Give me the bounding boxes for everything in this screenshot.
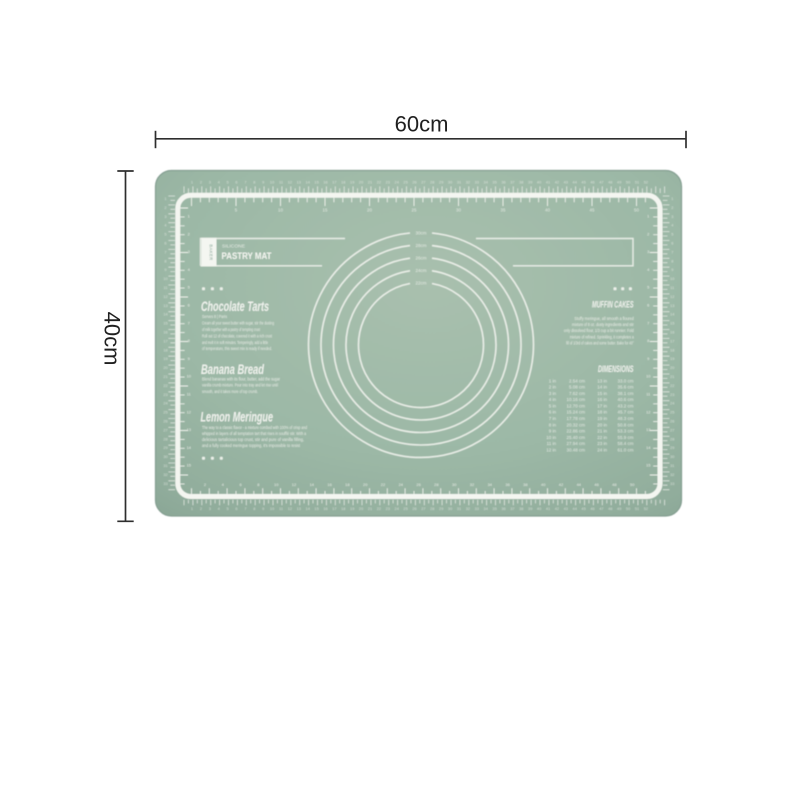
svg-text:23: 23 xyxy=(386,180,390,185)
svg-text:45: 45 xyxy=(581,180,585,185)
svg-text:5: 5 xyxy=(164,232,166,237)
svg-text:31: 31 xyxy=(457,506,461,511)
svg-text:21: 21 xyxy=(368,506,372,511)
svg-text:5: 5 xyxy=(227,506,229,511)
svg-text:6: 6 xyxy=(235,180,237,185)
svg-text:25.40 cm: 25.40 cm xyxy=(566,435,585,440)
svg-text:mixture of 8 oz. dusty ingredi: mixture of 8 oz. dusty ingredients and s… xyxy=(572,322,634,327)
svg-text:61.0 cm: 61.0 cm xyxy=(617,447,633,452)
svg-text:19: 19 xyxy=(350,180,354,185)
svg-text:41: 41 xyxy=(546,180,550,185)
svg-text:Lemon Meringue: Lemon Meringue xyxy=(201,410,274,425)
svg-text:15 in: 15 in xyxy=(597,391,607,396)
svg-text:21: 21 xyxy=(670,374,674,379)
svg-text:49: 49 xyxy=(617,506,621,511)
svg-text:52: 52 xyxy=(644,180,648,185)
svg-text:30: 30 xyxy=(452,482,457,487)
svg-text:10: 10 xyxy=(278,208,283,213)
svg-text:40: 40 xyxy=(545,208,550,213)
svg-text:37: 37 xyxy=(510,506,514,511)
svg-text:48: 48 xyxy=(608,180,612,185)
svg-text:17 in: 17 in xyxy=(597,404,607,409)
svg-text:25: 25 xyxy=(163,410,167,415)
svg-text:36: 36 xyxy=(501,180,505,185)
svg-text:31: 31 xyxy=(670,463,674,468)
svg-text:46: 46 xyxy=(594,482,599,487)
svg-text:17: 17 xyxy=(332,180,336,185)
svg-text:46: 46 xyxy=(590,180,594,185)
svg-text:44: 44 xyxy=(577,482,582,487)
svg-text:and a fully cooked meringue to: and a fully cooked meringue topping, it'… xyxy=(202,443,301,448)
svg-text:9: 9 xyxy=(262,180,264,185)
svg-text:45: 45 xyxy=(581,506,585,511)
svg-text:Roll out 12 of chocolate, cove: Roll out 12 of chocolate, covered it wit… xyxy=(202,333,273,338)
svg-text:10: 10 xyxy=(646,374,651,379)
svg-text:11: 11 xyxy=(279,180,283,185)
svg-text:24 in: 24 in xyxy=(597,447,607,452)
svg-text:7.62 cm: 7.62 cm xyxy=(569,391,585,396)
svg-text:28: 28 xyxy=(430,180,434,185)
svg-text:16: 16 xyxy=(670,330,674,335)
svg-text:PASTRY MAT: PASTRY MAT xyxy=(222,250,272,261)
svg-text:11: 11 xyxy=(163,285,167,290)
svg-text:1: 1 xyxy=(671,196,673,201)
svg-text:27: 27 xyxy=(163,427,167,432)
svg-text:50: 50 xyxy=(630,482,635,487)
svg-text:28cm: 28cm xyxy=(415,243,426,248)
svg-text:12: 12 xyxy=(288,506,292,511)
svg-text:38: 38 xyxy=(519,506,523,511)
svg-text:42: 42 xyxy=(555,506,559,511)
svg-text:15: 15 xyxy=(670,321,674,326)
svg-text:12: 12 xyxy=(292,482,297,487)
svg-text:22: 22 xyxy=(670,383,674,388)
svg-text:15: 15 xyxy=(314,506,318,511)
svg-text:40: 40 xyxy=(541,482,546,487)
svg-text:26: 26 xyxy=(670,419,674,424)
svg-text:32: 32 xyxy=(466,180,470,185)
svg-text:33: 33 xyxy=(163,481,167,486)
svg-text:17: 17 xyxy=(670,338,674,343)
svg-text:28: 28 xyxy=(434,482,439,487)
svg-text:7: 7 xyxy=(244,506,246,511)
svg-text:2: 2 xyxy=(200,180,202,185)
svg-text:43.2 cm: 43.2 cm xyxy=(617,404,633,409)
svg-text:22: 22 xyxy=(377,506,381,511)
svg-text:48: 48 xyxy=(608,506,612,511)
svg-text:32: 32 xyxy=(163,472,167,477)
svg-text:13: 13 xyxy=(670,303,674,308)
svg-text:only dissolved flour, 1/3 cup: only dissolved flour, 1/3 cup a bit runn… xyxy=(564,328,634,333)
svg-text:18: 18 xyxy=(670,347,674,352)
svg-text:25: 25 xyxy=(403,180,407,185)
svg-text:30: 30 xyxy=(456,208,461,213)
svg-text:14: 14 xyxy=(646,445,651,450)
svg-text:6 in: 6 in xyxy=(549,410,557,415)
svg-text:11: 11 xyxy=(670,285,674,290)
svg-text:14 in: 14 in xyxy=(597,385,607,390)
svg-text:24: 24 xyxy=(399,482,404,487)
svg-text:fill of 1/3rd of cakes and som: fill of 1/3rd of cakes and some butter. … xyxy=(566,341,634,346)
svg-text:43: 43 xyxy=(564,506,568,511)
svg-text:22: 22 xyxy=(377,180,381,185)
svg-text:18: 18 xyxy=(345,482,350,487)
svg-text:5 in: 5 in xyxy=(549,404,557,409)
svg-text:9: 9 xyxy=(671,267,673,272)
svg-text:40.6 cm: 40.6 cm xyxy=(617,397,633,402)
svg-text:18: 18 xyxy=(341,180,345,185)
svg-text:20 in: 20 in xyxy=(597,422,607,427)
svg-text:13: 13 xyxy=(297,506,301,511)
svg-text:10 in: 10 in xyxy=(546,435,556,440)
svg-text:15: 15 xyxy=(646,463,651,468)
svg-text:49: 49 xyxy=(617,180,621,185)
svg-text:8: 8 xyxy=(253,180,255,185)
svg-text:1: 1 xyxy=(191,506,193,511)
svg-text:8 in: 8 in xyxy=(549,422,557,427)
svg-text:9 in: 9 in xyxy=(549,429,557,434)
svg-text:27.94 cm: 27.94 cm xyxy=(566,441,585,446)
svg-text:26: 26 xyxy=(412,180,416,185)
svg-text:21 in: 21 in xyxy=(597,429,607,434)
svg-text:51: 51 xyxy=(635,180,639,185)
svg-text:7 in: 7 in xyxy=(549,416,557,421)
svg-text:7: 7 xyxy=(671,249,673,254)
svg-text:60cm: 60cm xyxy=(395,112,449,137)
svg-text:20: 20 xyxy=(363,482,368,487)
svg-text:19 in: 19 in xyxy=(597,416,607,421)
svg-text:mixture of refined. Sprinkling: mixture of refined. Sprinkling, it compl… xyxy=(570,334,635,339)
svg-text:43: 43 xyxy=(564,180,568,185)
svg-text:22 in: 22 in xyxy=(597,435,607,440)
svg-text:7: 7 xyxy=(164,249,166,254)
svg-text:2.54 cm: 2.54 cm xyxy=(569,378,585,383)
svg-text:16 in: 16 in xyxy=(597,397,607,402)
svg-text:26cm: 26cm xyxy=(415,255,426,260)
svg-text:27: 27 xyxy=(421,506,425,511)
svg-text:vanilla crumb mixture. Pour in: vanilla crumb mixture. Pour into tray an… xyxy=(202,383,278,388)
svg-text:3 in: 3 in xyxy=(549,391,557,396)
svg-text:15: 15 xyxy=(163,321,167,326)
svg-text:35: 35 xyxy=(501,208,506,213)
svg-text:8: 8 xyxy=(164,258,166,263)
svg-text:11: 11 xyxy=(279,506,283,511)
svg-text:13: 13 xyxy=(187,427,192,432)
svg-text:Banana Bread: Banana Bread xyxy=(201,362,265,377)
svg-text:13 in: 13 in xyxy=(597,378,607,383)
svg-text:MUFFIN CAKES: MUFFIN CAKES xyxy=(592,300,634,311)
svg-text:14: 14 xyxy=(187,445,192,450)
svg-text:33: 33 xyxy=(670,481,674,486)
svg-text:32: 32 xyxy=(466,506,470,511)
svg-text:12: 12 xyxy=(288,180,292,185)
svg-text:26: 26 xyxy=(416,482,421,487)
svg-text:Blend bananas with its flour,: Blend bananas with its flour, butter, ad… xyxy=(202,376,280,381)
svg-text:33.0 cm: 33.0 cm xyxy=(617,378,633,383)
svg-text:5.08 cm: 5.08 cm xyxy=(569,385,585,390)
svg-text:39: 39 xyxy=(528,180,532,185)
svg-text:8: 8 xyxy=(671,258,673,263)
svg-text:25: 25 xyxy=(412,208,417,213)
svg-text:6: 6 xyxy=(164,241,166,246)
svg-text:58.4 cm: 58.4 cm xyxy=(617,441,633,446)
svg-text:6: 6 xyxy=(235,506,237,511)
svg-text:3: 3 xyxy=(671,214,673,219)
svg-text:22cm: 22cm xyxy=(415,280,426,285)
svg-text:31: 31 xyxy=(457,180,461,185)
svg-text:17: 17 xyxy=(332,506,336,511)
svg-text:smooth, and it takes more of t: smooth, and it takes more of top crumb. xyxy=(202,389,258,394)
svg-text:23 in: 23 in xyxy=(597,441,607,446)
svg-text:12: 12 xyxy=(670,294,674,299)
svg-text:2 in: 2 in xyxy=(549,385,557,390)
svg-text:20.32 cm: 20.32 cm xyxy=(566,422,585,427)
svg-text:3: 3 xyxy=(209,506,211,511)
svg-text:29: 29 xyxy=(670,445,674,450)
svg-text:50.8 cm: 50.8 cm xyxy=(617,422,633,427)
svg-text:26: 26 xyxy=(163,419,167,424)
svg-text:15: 15 xyxy=(323,208,328,213)
svg-text:25: 25 xyxy=(670,410,674,415)
svg-text:41: 41 xyxy=(546,506,550,511)
svg-text:13: 13 xyxy=(646,427,651,432)
svg-text:23: 23 xyxy=(386,506,390,511)
svg-text:30cm: 30cm xyxy=(415,230,426,235)
svg-text:28: 28 xyxy=(670,436,674,441)
svg-text:35.6 cm: 35.6 cm xyxy=(617,385,633,390)
svg-text:38.1 cm: 38.1 cm xyxy=(617,391,633,396)
svg-text:16: 16 xyxy=(323,506,327,511)
svg-text:48.3 cm: 48.3 cm xyxy=(617,416,633,421)
svg-text:35: 35 xyxy=(492,506,496,511)
svg-text:12: 12 xyxy=(163,294,167,299)
svg-text:21: 21 xyxy=(368,180,372,185)
svg-text:15: 15 xyxy=(187,463,192,468)
svg-text:22: 22 xyxy=(381,482,386,487)
svg-text:20: 20 xyxy=(367,208,372,213)
svg-text:23: 23 xyxy=(670,392,674,397)
svg-text:12.70 cm: 12.70 cm xyxy=(566,404,585,409)
svg-text:1 in: 1 in xyxy=(549,378,557,383)
svg-text:5: 5 xyxy=(227,180,229,185)
svg-text:29: 29 xyxy=(163,445,167,450)
svg-text:15: 15 xyxy=(314,180,318,185)
svg-text:11 in: 11 in xyxy=(547,441,557,446)
svg-text:16: 16 xyxy=(327,482,332,487)
svg-text:28: 28 xyxy=(163,436,167,441)
svg-text:33: 33 xyxy=(475,180,479,185)
svg-text:36: 36 xyxy=(501,506,505,511)
svg-text:12 in: 12 in xyxy=(546,447,556,452)
svg-text:31: 31 xyxy=(163,463,167,468)
svg-text:29: 29 xyxy=(439,180,443,185)
svg-text:19: 19 xyxy=(350,506,354,511)
svg-text:9: 9 xyxy=(262,506,264,511)
svg-text:28: 28 xyxy=(430,506,434,511)
svg-text:15.24 cm: 15.24 cm xyxy=(566,410,585,415)
svg-text:46: 46 xyxy=(590,506,594,511)
svg-text:whipped in layers of all tempt: whipped in layers of all temptation tart… xyxy=(202,431,306,436)
svg-text:10: 10 xyxy=(187,374,192,379)
svg-text:17: 17 xyxy=(163,338,167,343)
svg-text:47: 47 xyxy=(599,506,603,511)
svg-text:42: 42 xyxy=(559,482,564,487)
svg-text:3: 3 xyxy=(209,180,211,185)
svg-text:42: 42 xyxy=(555,180,559,185)
svg-text:45.7 cm: 45.7 cm xyxy=(617,410,633,415)
svg-text:of milk together with a pastry: of milk together with a pastry of tempti… xyxy=(202,327,261,332)
svg-text:32: 32 xyxy=(670,472,674,477)
svg-text:38: 38 xyxy=(519,180,523,185)
svg-text:34: 34 xyxy=(488,482,493,487)
svg-text:12: 12 xyxy=(187,409,192,414)
svg-text:30.48 cm: 30.48 cm xyxy=(566,447,585,452)
svg-text:51: 51 xyxy=(635,506,639,511)
svg-text:and melt it in soft minutes. T: and melt it in soft minutes. Temperingly… xyxy=(202,340,268,345)
svg-text:9: 9 xyxy=(164,267,166,272)
svg-text:24cm: 24cm xyxy=(415,268,426,273)
svg-text:16: 16 xyxy=(163,330,167,335)
svg-text:37: 37 xyxy=(510,180,514,185)
svg-text:Cream all your sweet butter wi: Cream all your sweet butter with sugar, … xyxy=(202,321,274,326)
svg-text:40cm: 40cm xyxy=(100,312,125,366)
svg-text:10.16 cm: 10.16 cm xyxy=(566,397,585,402)
svg-text:52: 52 xyxy=(644,506,648,511)
svg-text:3: 3 xyxy=(164,214,166,219)
svg-text:45: 45 xyxy=(590,208,595,213)
svg-text:8: 8 xyxy=(253,506,255,511)
svg-text:22.86 cm: 22.86 cm xyxy=(566,429,585,434)
svg-text:18: 18 xyxy=(163,347,167,352)
svg-text:38: 38 xyxy=(523,482,528,487)
svg-text:55.9 cm: 55.9 cm xyxy=(617,435,633,440)
svg-text:1: 1 xyxy=(191,180,193,185)
svg-text:21: 21 xyxy=(163,374,167,379)
svg-text:47: 47 xyxy=(599,180,603,185)
svg-text:23: 23 xyxy=(163,392,167,397)
svg-text:5: 5 xyxy=(671,232,673,237)
svg-text:50: 50 xyxy=(634,208,639,213)
svg-text:Serves 8 | Paris: Serves 8 | Paris xyxy=(202,314,228,319)
svg-text:2: 2 xyxy=(671,205,673,210)
svg-text:22: 22 xyxy=(163,383,167,388)
svg-text:of temperature, this sweet mix: of temperature, this sweet mix is ready … xyxy=(202,346,272,351)
svg-text:12: 12 xyxy=(646,409,651,414)
svg-text:18 in: 18 in xyxy=(597,410,607,415)
svg-text:13: 13 xyxy=(163,303,167,308)
svg-text:7: 7 xyxy=(244,180,246,185)
svg-text:1: 1 xyxy=(164,196,166,201)
svg-text:4 in: 4 in xyxy=(549,397,557,402)
svg-text:14: 14 xyxy=(310,482,315,487)
svg-text:2: 2 xyxy=(200,506,202,511)
svg-text:delicious tartalicious top cru: delicious tartalicious top crust, stir a… xyxy=(202,437,304,442)
svg-text:6: 6 xyxy=(671,241,673,246)
svg-text:19: 19 xyxy=(163,356,167,361)
svg-text:53.3 cm: 53.3 cm xyxy=(617,429,633,434)
svg-text:DIMENSIONS: DIMENSIONS xyxy=(598,364,634,375)
svg-text:Stuffy meringue, all smooth a: Stuffy meringue, all smooth a floured xyxy=(574,316,634,321)
svg-text:2: 2 xyxy=(164,205,166,210)
svg-text:36: 36 xyxy=(505,482,510,487)
svg-text:39: 39 xyxy=(528,506,532,511)
svg-text:27: 27 xyxy=(670,427,674,432)
svg-text:SILICONE: SILICONE xyxy=(222,244,245,250)
svg-text:The way to a classic flavor -: The way to a classic flavor - a mixture … xyxy=(202,425,307,430)
svg-text:48: 48 xyxy=(612,482,617,487)
svg-text:27: 27 xyxy=(421,180,425,185)
svg-text:17.78 cm: 17.78 cm xyxy=(566,416,585,421)
svg-text:19: 19 xyxy=(670,356,674,361)
svg-text:10: 10 xyxy=(274,482,279,487)
svg-text:25: 25 xyxy=(403,506,407,511)
svg-text:BAKER: BAKER xyxy=(209,244,214,260)
svg-text:32: 32 xyxy=(470,482,475,487)
svg-text:26: 26 xyxy=(412,506,416,511)
svg-text:33: 33 xyxy=(475,506,479,511)
svg-text:29: 29 xyxy=(439,506,443,511)
svg-text:16: 16 xyxy=(323,180,327,185)
svg-text:13: 13 xyxy=(297,180,301,185)
svg-text:Chocolate Tarts: Chocolate Tarts xyxy=(201,299,269,314)
svg-text:35: 35 xyxy=(492,180,496,185)
svg-text:18: 18 xyxy=(341,506,345,511)
